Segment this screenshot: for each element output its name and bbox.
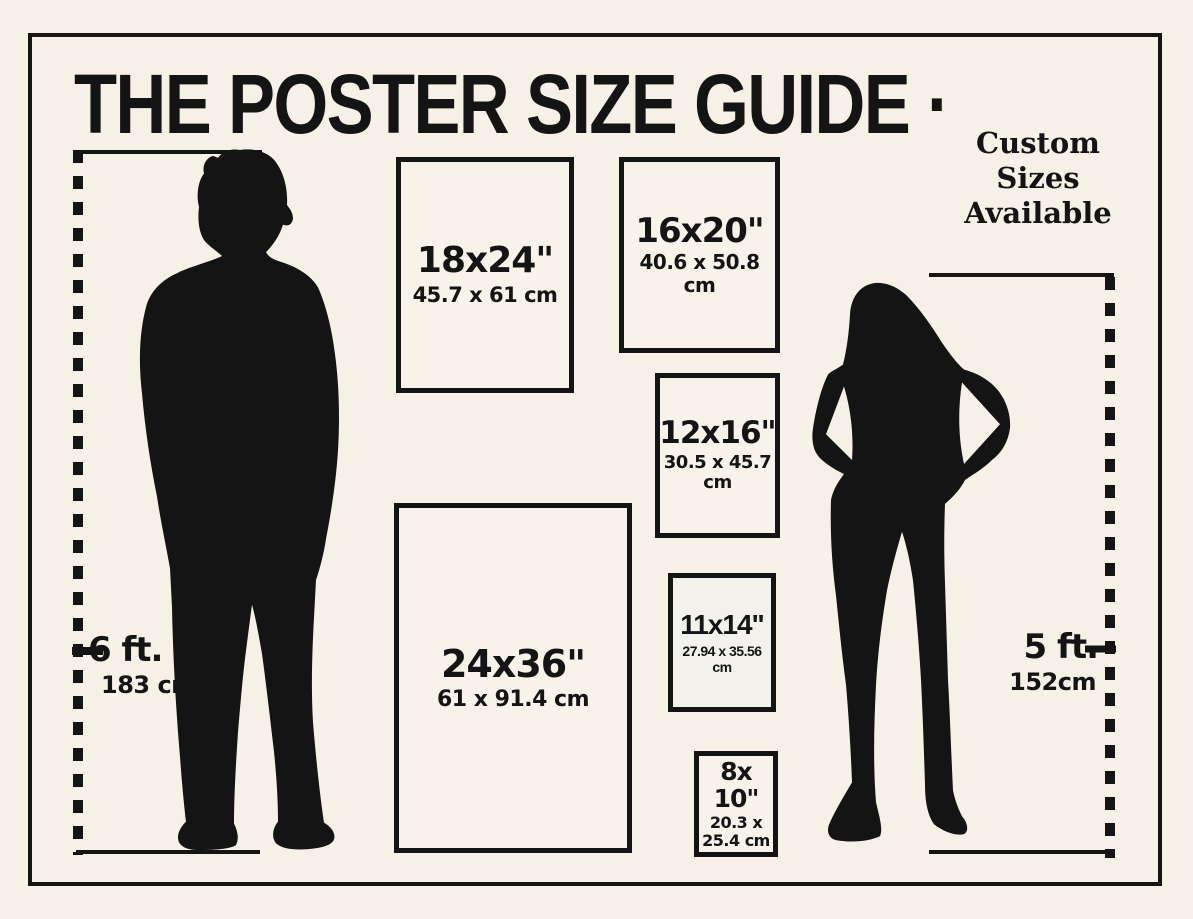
size-inches-label-line2: 10" xyxy=(714,785,759,812)
poster-box-12x16: 12x16" 30.5 x 45.7 cm xyxy=(655,373,780,538)
size-cm-label: 30.5 x 45.7 cm xyxy=(660,453,775,494)
size-cm-label: 45.7 x 61 cm xyxy=(413,283,558,307)
man-silhouette xyxy=(130,148,345,855)
poster-box-8x10: 8x 10" 20.3 x 25.4 cm xyxy=(694,751,778,857)
size-inches-label: 18x24" xyxy=(417,242,553,281)
woman-height-centimeters: 152cm xyxy=(1008,670,1096,694)
size-inches-label: 11x14" xyxy=(680,610,764,640)
size-inches-label: 24x36" xyxy=(441,644,585,685)
man-height-centimeters: 183 cm xyxy=(101,673,196,697)
poster-size-guide: THE POSTER SIZE GUIDE · Custom Sizes Ava… xyxy=(0,0,1193,919)
woman-height-feet: 5 ft. xyxy=(1008,630,1098,664)
size-inches-label: 12x16" xyxy=(659,417,775,450)
size-cm-label-line2: 25.4 cm xyxy=(702,832,770,850)
woman-height-label: 5 ft. 152cm xyxy=(1008,630,1098,694)
poster-box-11x14: 11x14" 27.94 x 35.56 cm xyxy=(668,573,776,712)
poster-box-16x20: 16x20" 40.6 x 50.8 cm xyxy=(619,157,780,353)
size-cm-label-line1: 20.3 x xyxy=(710,814,762,832)
poster-box-24x36: 24x36" 61 x 91.4 cm xyxy=(394,503,632,853)
man-height-feet: 6 ft. xyxy=(88,633,196,667)
size-inches-label: 16x20" xyxy=(635,213,763,250)
size-inches-label-line1: 8x xyxy=(720,758,752,785)
man-height-label: 6 ft. 183 cm xyxy=(88,633,196,697)
size-cm-label: 27.94 x 35.56 cm xyxy=(673,643,771,675)
poster-box-18x24: 18x24" 45.7 x 61 cm xyxy=(396,157,574,393)
size-cm-label: 40.6 x 50.8 cm xyxy=(624,251,775,297)
size-cm-label: 61 x 91.4 cm xyxy=(437,687,589,712)
woman-silhouette xyxy=(812,277,1015,862)
